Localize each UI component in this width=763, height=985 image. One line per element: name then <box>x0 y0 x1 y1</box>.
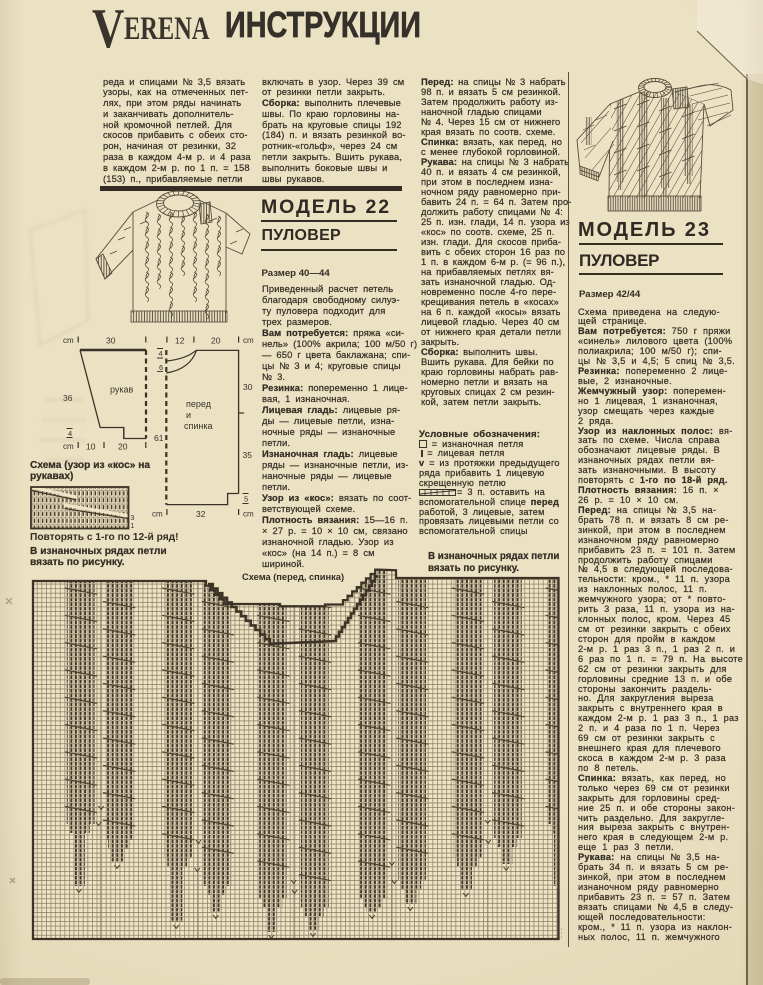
svg-text:32: 32 <box>196 509 206 519</box>
svg-text:35: 35 <box>243 450 253 460</box>
svg-text:cm: cm <box>243 336 254 345</box>
svg-text:3: 3 <box>131 515 135 522</box>
svg-text:20: 20 <box>118 442 128 452</box>
svg-text:cm: cm <box>152 510 163 519</box>
svg-text:cm: cm <box>243 510 254 519</box>
svg-text:1: 1 <box>131 523 135 530</box>
svg-text:рукав: рукав <box>110 385 134 395</box>
svg-text:спинка: спинка <box>184 421 213 431</box>
svg-text:5: 5 <box>244 495 248 504</box>
svg-text:20: 20 <box>211 336 221 346</box>
svg-text:61: 61 <box>154 433 164 443</box>
svg-text:4: 4 <box>159 349 163 358</box>
svg-text:30: 30 <box>106 336 116 346</box>
svg-text:30: 30 <box>243 382 253 392</box>
svg-text:6: 6 <box>159 363 163 372</box>
svg-text:перед: перед <box>186 399 212 409</box>
svg-text:и: и <box>186 410 191 420</box>
svg-text:12: 12 <box>175 336 185 346</box>
